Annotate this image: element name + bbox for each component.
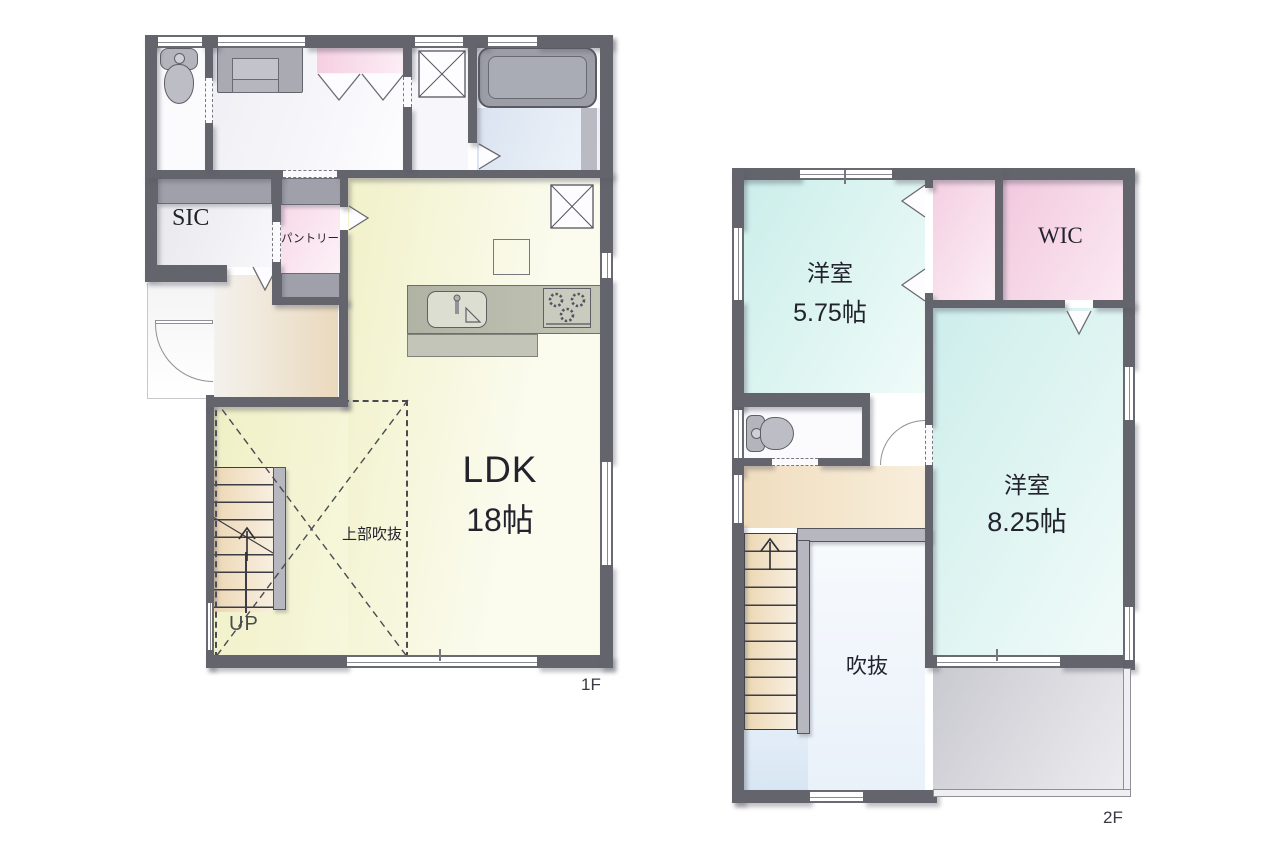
- pantry-door-icon: [348, 205, 370, 231]
- bifold-door-icon: [317, 73, 405, 103]
- bath-door-icon: [478, 143, 502, 170]
- window-sliding: [937, 655, 1060, 668]
- wall: [272, 178, 281, 222]
- wall: [1123, 420, 1135, 607]
- bedroom-a-name-label: 洋室: [780, 254, 880, 288]
- balcony-railing: [933, 789, 1131, 797]
- kitchen-lower-counter: [407, 334, 538, 357]
- doorway-dashed: [772, 458, 818, 466]
- wall: [272, 262, 281, 300]
- window: [218, 35, 305, 48]
- wall: [205, 123, 213, 170]
- vanity-cabinet: [217, 45, 303, 93]
- bathtub: [478, 47, 597, 108]
- wall: [818, 458, 862, 466]
- wall: [995, 168, 1003, 300]
- wall: [1060, 655, 1123, 668]
- window-center-tick: [996, 649, 998, 661]
- stove: [543, 288, 591, 328]
- wall: [925, 293, 933, 300]
- wic-door-icon: [1065, 309, 1093, 337]
- wall: [862, 407, 870, 466]
- closet-x-symbol: [418, 50, 466, 98]
- floor-plan-1f: LDK 18帖 SIC パントリー 上部吹抜 UP 1F: [145, 35, 615, 680]
- floor1-label: 1F: [581, 675, 601, 695]
- toilet-fixture-2f: [746, 413, 796, 455]
- wall: [403, 107, 412, 170]
- pantry-label: パントリー: [279, 230, 341, 246]
- ldk-size-label: 18帖: [445, 495, 555, 541]
- doorway-dashed: [925, 425, 933, 465]
- window: [800, 168, 892, 180]
- wall: [206, 655, 347, 668]
- window: [600, 253, 613, 278]
- wall: [925, 308, 933, 425]
- bedroom-door-arc: [880, 420, 925, 465]
- window-center-tick: [844, 170, 846, 184]
- doorway-dashed: [403, 77, 412, 107]
- wall: [863, 790, 937, 803]
- wall: [600, 565, 613, 668]
- window: [810, 790, 863, 803]
- linen-closet: [317, 45, 405, 73]
- stairs-up-arrow-2f: [758, 536, 782, 572]
- wall: [600, 278, 613, 462]
- wall: [600, 35, 613, 253]
- bath-counter: [581, 108, 597, 170]
- wall: [732, 523, 744, 803]
- doorway-dashed: [283, 170, 337, 178]
- wic-label: WIC: [1038, 223, 1083, 249]
- window: [1123, 367, 1135, 420]
- wall: [337, 170, 613, 178]
- open-ceiling-label: 上部吹抜: [342, 523, 402, 544]
- window: [206, 603, 214, 650]
- window-sliding: [347, 655, 537, 668]
- refrigerator-x-symbol: [550, 184, 594, 229]
- wall: [340, 178, 348, 207]
- void-railing-top: [797, 528, 932, 542]
- kitchen-sink: [427, 291, 487, 328]
- pantry-shelf-top: [281, 178, 342, 205]
- balcony: [933, 668, 1126, 789]
- wall: [468, 43, 477, 143]
- window: [158, 35, 202, 48]
- stairs-up-label: UP: [229, 613, 259, 636]
- hall-2f: [744, 466, 925, 528]
- wall: [272, 297, 348, 305]
- window: [732, 228, 744, 300]
- toilet-fixture: [160, 48, 200, 105]
- floor-plan-canvas: LDK 18帖 SIC パントリー 上部吹抜 UP 1F: [0, 0, 1280, 867]
- wall: [145, 35, 157, 278]
- wall: [744, 458, 772, 466]
- window: [488, 35, 537, 48]
- bedroom-a-size-label: 5.75帖: [772, 293, 888, 329]
- window: [732, 475, 744, 523]
- void-label: 吹抜: [828, 650, 906, 680]
- wall: [925, 300, 1065, 308]
- wall: [145, 265, 227, 282]
- wall: [206, 395, 214, 603]
- wall: [925, 465, 933, 668]
- understairs-floor: [744, 730, 808, 790]
- window-center-tick: [439, 649, 441, 661]
- wall: [206, 397, 348, 407]
- balcony-railing: [1123, 668, 1131, 797]
- wall: [925, 180, 933, 188]
- wall: [892, 168, 1135, 180]
- wall: [732, 458, 744, 475]
- floor2-label: 2F: [1103, 808, 1123, 828]
- kitchen-cupboard: [493, 239, 530, 275]
- wall: [1093, 300, 1135, 308]
- void-railing-side: [797, 540, 810, 734]
- wall: [205, 43, 213, 78]
- burner-icons: [544, 289, 592, 329]
- entrance-door-leaf: [155, 320, 213, 324]
- wall: [732, 168, 744, 228]
- doorway-dashed: [205, 78, 213, 123]
- window: [415, 35, 463, 48]
- wall: [732, 393, 870, 407]
- wall: [340, 230, 348, 305]
- room-closet: [933, 180, 995, 300]
- wall: [403, 43, 412, 77]
- wall: [732, 790, 810, 803]
- ldk-name-label: LDK: [445, 449, 555, 491]
- bedroom-b-size-label: 8.25帖: [960, 500, 1094, 539]
- window: [732, 410, 744, 458]
- sic-shelf: [157, 178, 272, 204]
- wall: [1123, 168, 1135, 367]
- window: [1123, 607, 1135, 660]
- closet-bifold-icon: [900, 183, 926, 303]
- sic-label: SIC: [172, 205, 209, 232]
- bedroom-b-name-label: 洋室: [972, 466, 1082, 500]
- floor-plan-2f: 洋室 5.75帖 WIC 洋室 8.25帖 吹抜 2F: [732, 168, 1137, 813]
- window: [600, 462, 613, 565]
- wall: [339, 305, 348, 407]
- wall: [145, 170, 283, 178]
- pantry-shelf-bottom: [281, 273, 340, 299]
- wall: [305, 35, 415, 48]
